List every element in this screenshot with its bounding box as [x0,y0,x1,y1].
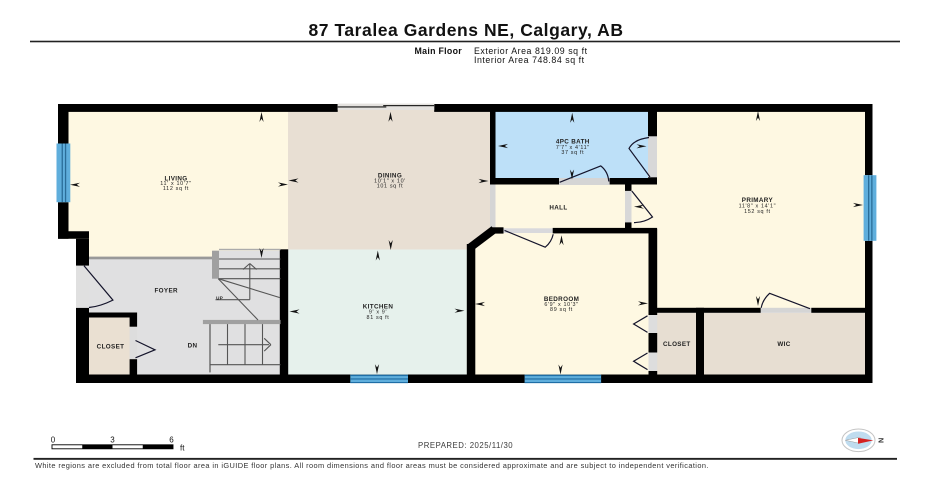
svg-text:CLOSET: CLOSET [663,341,691,348]
svg-text:89 sq ft: 89 sq ft [550,307,573,313]
svg-text:112 sq ft: 112 sq ft [163,186,189,192]
svg-text:White regions are excluded fro: White regions are excluded from total fl… [35,461,709,470]
svg-text:HALL: HALL [549,204,567,211]
svg-text:101 sq ft: 101 sq ft [377,184,404,190]
svg-text:Main Floor: Main Floor [415,46,463,56]
svg-text:PREPARED: 2025/11/30: PREPARED: 2025/11/30 [418,441,513,450]
svg-text:FOYER: FOYER [154,288,178,295]
svg-text:152 sq ft: 152 sq ft [744,209,771,215]
svg-text:UP: UP [216,296,223,301]
svg-text:0: 0 [51,436,56,445]
svg-text:N: N [877,438,886,443]
svg-text:ft: ft [180,443,185,452]
svg-text:Interior Area 748.84 sq ft: Interior Area 748.84 sq ft [474,55,585,65]
svg-text:3: 3 [110,436,115,445]
svg-text:CLOSET: CLOSET [97,344,125,351]
svg-text:DN: DN [188,343,198,350]
svg-text:81 sq ft: 81 sq ft [367,315,390,321]
svg-text:6: 6 [169,436,174,445]
svg-text:WIC: WIC [777,341,790,348]
svg-text:87 Taralea Gardens NE, Calgary: 87 Taralea Gardens NE, Calgary, AB [308,20,623,40]
svg-text:37 sq ft: 37 sq ft [561,150,584,156]
